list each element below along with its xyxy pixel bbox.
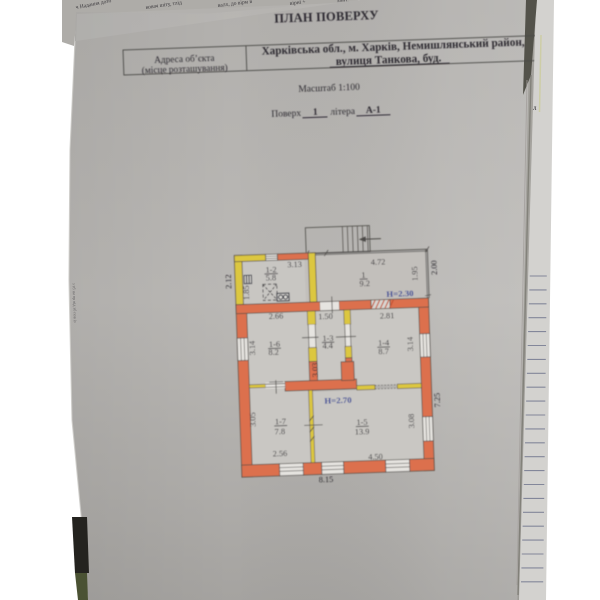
svg-text:3.14: 3.14 xyxy=(248,340,258,356)
svg-text:1.50: 1.50 xyxy=(318,312,333,322)
svg-text:літера: літера xyxy=(330,107,356,118)
svg-text:9.2: 9.2 xyxy=(359,279,370,288)
svg-text:4.4: 4.4 xyxy=(322,342,334,351)
svg-text:1.85: 1.85 xyxy=(242,285,252,300)
svg-text:5.8: 5.8 xyxy=(265,273,276,282)
svg-text:3.08: 3.08 xyxy=(407,414,417,429)
svg-text:2.81: 2.81 xyxy=(380,311,395,321)
svg-text:3.14: 3.14 xyxy=(406,336,416,352)
svg-text:2.66: 2.66 xyxy=(269,312,284,322)
svg-text:л: л xyxy=(533,104,537,112)
svg-text:1.95: 1.95 xyxy=(410,266,420,281)
svg-text:H=2.30: H=2.30 xyxy=(386,288,414,299)
svg-text:3.03: 3.03 xyxy=(311,363,321,378)
svg-text:Поверх: Поверх xyxy=(271,109,301,120)
svg-text:4.72: 4.72 xyxy=(371,257,386,267)
svg-text:Масштаб 1:100: Масштаб 1:100 xyxy=(298,82,360,95)
svg-text:А-1: А-1 xyxy=(366,106,381,117)
svg-text:3.13: 3.13 xyxy=(287,260,302,270)
svg-text:7.8: 7.8 xyxy=(274,427,285,436)
svg-text:2.56: 2.56 xyxy=(273,449,288,459)
svg-text:1: 1 xyxy=(313,108,318,118)
svg-text:2.00: 2.00 xyxy=(430,260,440,275)
svg-text:3.05: 3.05 xyxy=(248,412,258,427)
svg-text:1-7: 1-7 xyxy=(275,417,286,426)
svg-text:8.15: 8.15 xyxy=(319,475,334,485)
svg-text:1-5: 1-5 xyxy=(356,418,367,427)
svg-text:7.25: 7.25 xyxy=(433,393,443,408)
svg-text:4.50: 4.50 xyxy=(368,452,383,462)
svg-text:13.9: 13.9 xyxy=(355,427,370,437)
svg-text:8.2: 8.2 xyxy=(268,348,279,357)
svg-text:8.7: 8.7 xyxy=(378,347,389,356)
svg-text:H=2.70: H=2.70 xyxy=(324,395,352,406)
svg-text:2.12: 2.12 xyxy=(224,274,234,289)
